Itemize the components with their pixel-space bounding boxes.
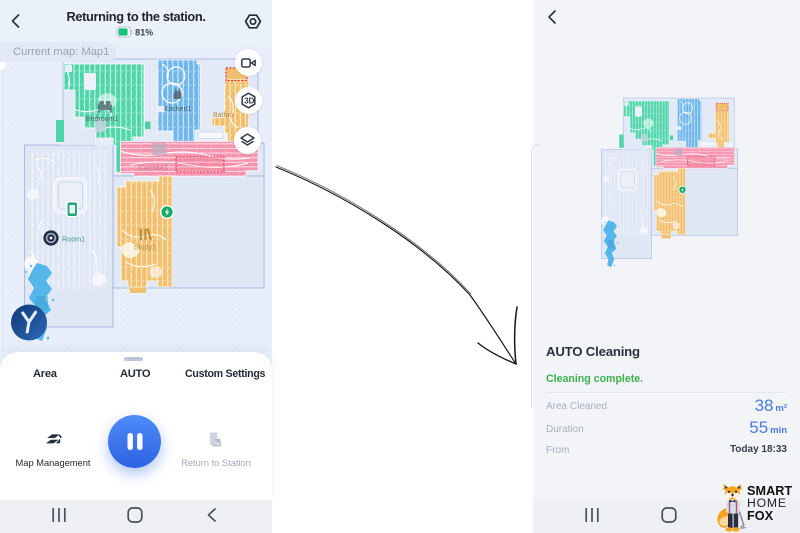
svg-text:Bathro: Bathro	[213, 112, 234, 119]
svg-text:81: 81	[135, 28, 145, 38]
svg-text:Bedroom1: Bedroom1	[86, 116, 118, 123]
svg-text:Corridor1: Corridor1	[139, 165, 168, 172]
svg-text:Kitchen1: Kitchen1	[164, 106, 191, 113]
svg-text:Room1: Room1	[62, 235, 85, 244]
svg-text:3D: 3D	[244, 97, 254, 106]
svg-text:Study1: Study1	[134, 245, 156, 252]
svg-text:%: %	[145, 28, 153, 38]
